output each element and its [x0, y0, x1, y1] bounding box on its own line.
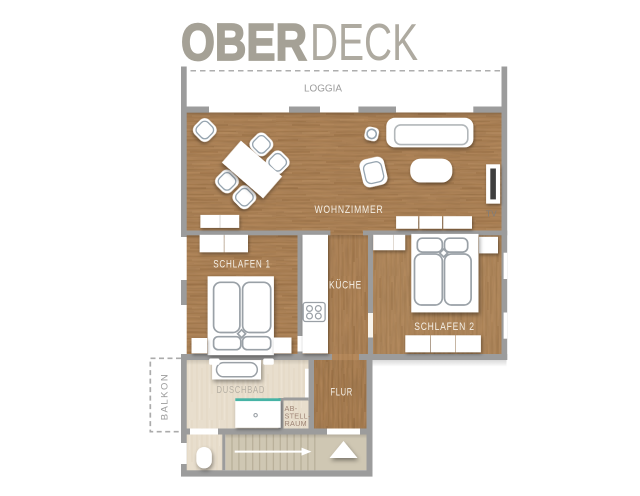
- svg-text:KÜCHE: KÜCHE: [329, 280, 362, 292]
- svg-text:WOHNZIMMER: WOHNZIMMER: [315, 204, 384, 216]
- svg-text:LOGGIA: LOGGIA: [304, 83, 342, 95]
- svg-text:FLUR: FLUR: [330, 386, 353, 398]
- svg-text:DUSCHBAD: DUSCHBAD: [217, 384, 266, 396]
- svg-text:BALKON: BALKON: [160, 373, 171, 421]
- svg-text:DECK: DECK: [310, 14, 418, 72]
- svg-text:SCHLAFEN 2: SCHLAFEN 2: [414, 321, 475, 333]
- svg-text:RAUM: RAUM: [285, 419, 307, 428]
- svg-text:TV: TV: [486, 210, 497, 219]
- svg-text:SCHLAFEN 1: SCHLAFEN 1: [213, 259, 271, 271]
- svg-text:OBER: OBER: [181, 14, 307, 72]
